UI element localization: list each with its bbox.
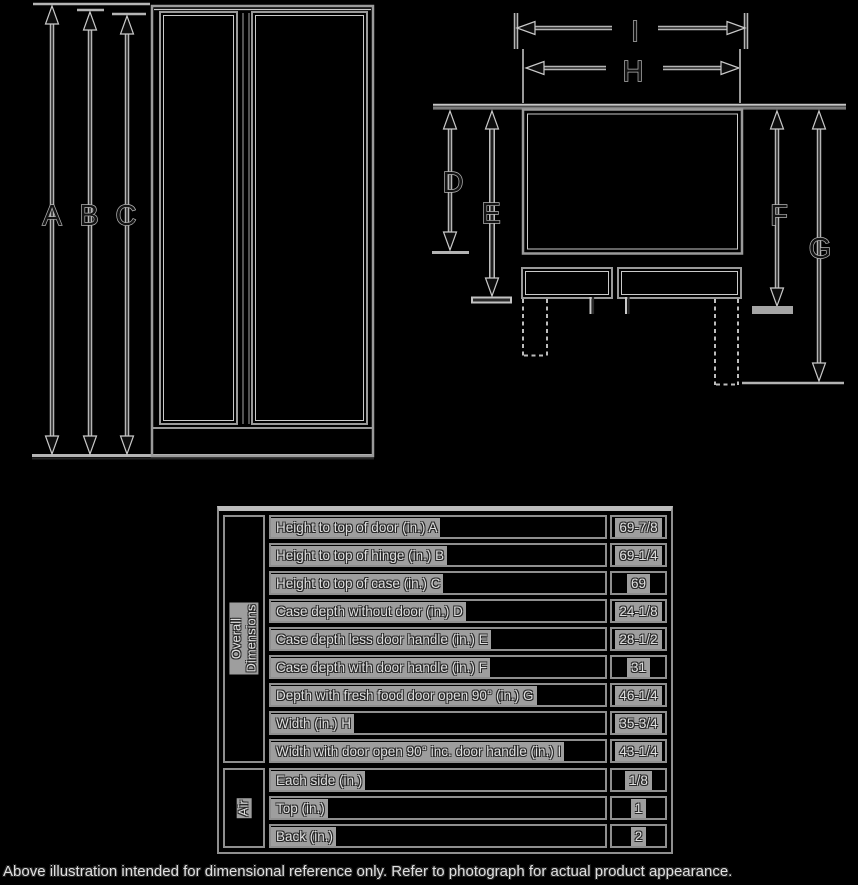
doors-open-dashed bbox=[523, 299, 738, 385]
table-row: Top (in.) 1 bbox=[269, 796, 667, 820]
group-label: Overall Dimensions bbox=[229, 603, 258, 675]
row-group-overall-dimensions: Overall Dimensions bbox=[223, 515, 265, 763]
row-value: 1/8 bbox=[625, 771, 652, 790]
row-label: Depth with fresh food door open 90° (in.… bbox=[271, 686, 537, 705]
row-label: Top (in.) bbox=[271, 799, 328, 818]
dim-label-G: G bbox=[809, 233, 832, 265]
row-group-air: Air bbox=[223, 768, 265, 848]
table-section-overall: Overall Dimensions Height to top of door… bbox=[223, 515, 667, 763]
table-section-air: Air Each side (in.) 1/8 Top (in.) 1 Back… bbox=[223, 768, 667, 848]
row-label: Each side (in.) bbox=[271, 771, 365, 790]
top-view-diagram: D E F G H I bbox=[432, 13, 846, 385]
front-view-diagram: A B C bbox=[32, 4, 374, 459]
row-value: 69-7/8 bbox=[615, 518, 661, 537]
table-row: Height to top of door (in.) A 69-7/8 bbox=[269, 515, 667, 539]
row-label: Width with door open 90° inc. door handl… bbox=[271, 742, 564, 761]
fridge-case-top bbox=[523, 110, 742, 254]
refrigerator-dimension-diagram: A B C bbox=[0, 0, 858, 500]
depth-arrows bbox=[432, 111, 826, 381]
table-row: Case depth less door handle (in.) E 28-1… bbox=[269, 627, 667, 651]
row-label: Case depth without door (in.) D bbox=[271, 602, 466, 621]
row-value: 24-1/8 bbox=[615, 602, 661, 621]
group-label: Air bbox=[237, 798, 252, 818]
dim-label-A: A bbox=[42, 200, 62, 232]
dim-label-I: I bbox=[631, 16, 639, 48]
row-label: Case depth with door handle (in.) F bbox=[271, 658, 490, 677]
row-value: 1 bbox=[631, 799, 647, 818]
doors-closed-top bbox=[522, 268, 741, 314]
footer-note: Above illustration intended for dimensio… bbox=[3, 863, 857, 880]
dim-label-H: H bbox=[623, 56, 644, 88]
row-value: 31 bbox=[627, 658, 650, 677]
row-value: 2 bbox=[631, 827, 647, 846]
row-value: 69 bbox=[627, 574, 650, 593]
row-label: Width (in.) H bbox=[271, 714, 354, 733]
row-value: 46-1/4 bbox=[615, 686, 661, 705]
table-row: Width (in.) H 35-3/4 bbox=[269, 711, 667, 735]
row-label: Height to top of door (in.) A bbox=[271, 518, 440, 537]
row-label: Back (in.) bbox=[271, 827, 336, 846]
table-row: Height to top of hinge (in.) B 69-1/4 bbox=[269, 543, 667, 567]
dim-label-D: D bbox=[443, 167, 464, 199]
dim-label-B: B bbox=[79, 200, 98, 232]
row-value: 69-1/4 bbox=[615, 546, 661, 565]
table-row: Back (in.) 2 bbox=[269, 824, 667, 848]
dim-label-C: C bbox=[116, 200, 137, 232]
row-value: 35-3/4 bbox=[615, 714, 661, 733]
table-row: Depth with fresh food door open 90° (in.… bbox=[269, 683, 667, 707]
row-value: 43-1/4 bbox=[615, 742, 661, 761]
dim-label-E: E bbox=[481, 198, 500, 230]
table-row: Height to top of case (in.) C 69 bbox=[269, 571, 667, 595]
row-label: Height to top of hinge (in.) B bbox=[271, 546, 447, 565]
dim-label-F: F bbox=[770, 200, 788, 232]
row-value: 28-1/2 bbox=[615, 630, 661, 649]
table-row: Case depth with door handle (in.) F 31 bbox=[269, 655, 667, 679]
table-row: Case depth without door (in.) D 24-1/8 bbox=[269, 599, 667, 623]
dimensions-table: Overall Dimensions Height to top of door… bbox=[217, 506, 673, 854]
fridge-front-outline bbox=[152, 6, 373, 456]
table-row: Each side (in.) 1/8 bbox=[269, 768, 667, 792]
table-row: Width with door open 90° inc. door handl… bbox=[269, 739, 667, 763]
row-label: Height to top of case (in.) C bbox=[271, 574, 443, 593]
row-label: Case depth less door handle (in.) E bbox=[271, 630, 491, 649]
